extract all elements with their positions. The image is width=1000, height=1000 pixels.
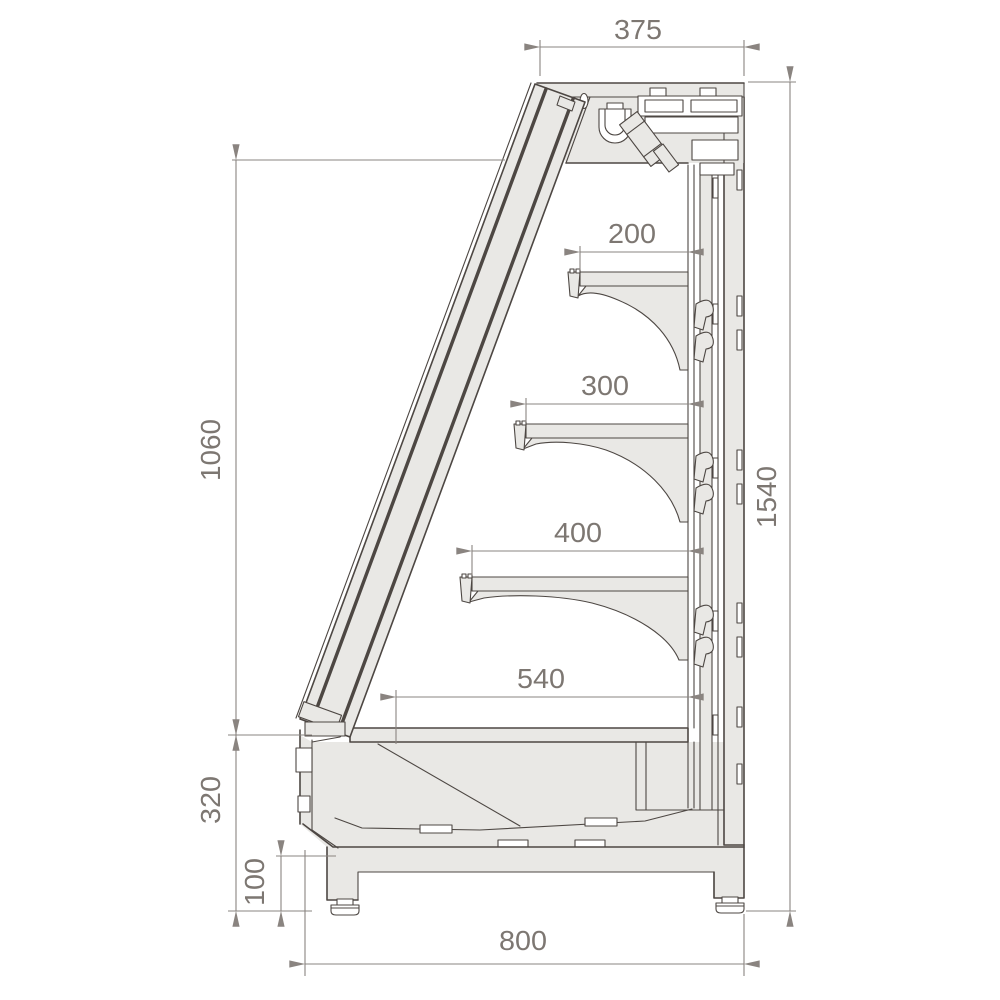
dim-label-300: 300 bbox=[581, 370, 629, 401]
dim-label-1060: 1060 bbox=[195, 419, 226, 481]
dim-label-375: 375 bbox=[614, 14, 662, 45]
dim-label-200: 200 bbox=[608, 218, 656, 249]
dim-label-320: 320 bbox=[195, 776, 226, 824]
rear-wall-outer-panel bbox=[724, 97, 744, 845]
dim-label-800: 800 bbox=[499, 925, 547, 956]
display-case-section-drawing: 375 1540 1060 320 100 800 bbox=[0, 0, 1000, 1000]
dim-label-400: 400 bbox=[554, 517, 602, 548]
technical-drawing-page: 375 1540 1060 320 100 800 bbox=[0, 0, 1000, 1000]
dim-label-100: 100 bbox=[239, 858, 270, 906]
dim-label-1540: 1540 bbox=[751, 466, 782, 528]
dim-label-540: 540 bbox=[517, 663, 565, 694]
front-bumper bbox=[296, 748, 312, 772]
bottom-deck bbox=[350, 728, 688, 742]
